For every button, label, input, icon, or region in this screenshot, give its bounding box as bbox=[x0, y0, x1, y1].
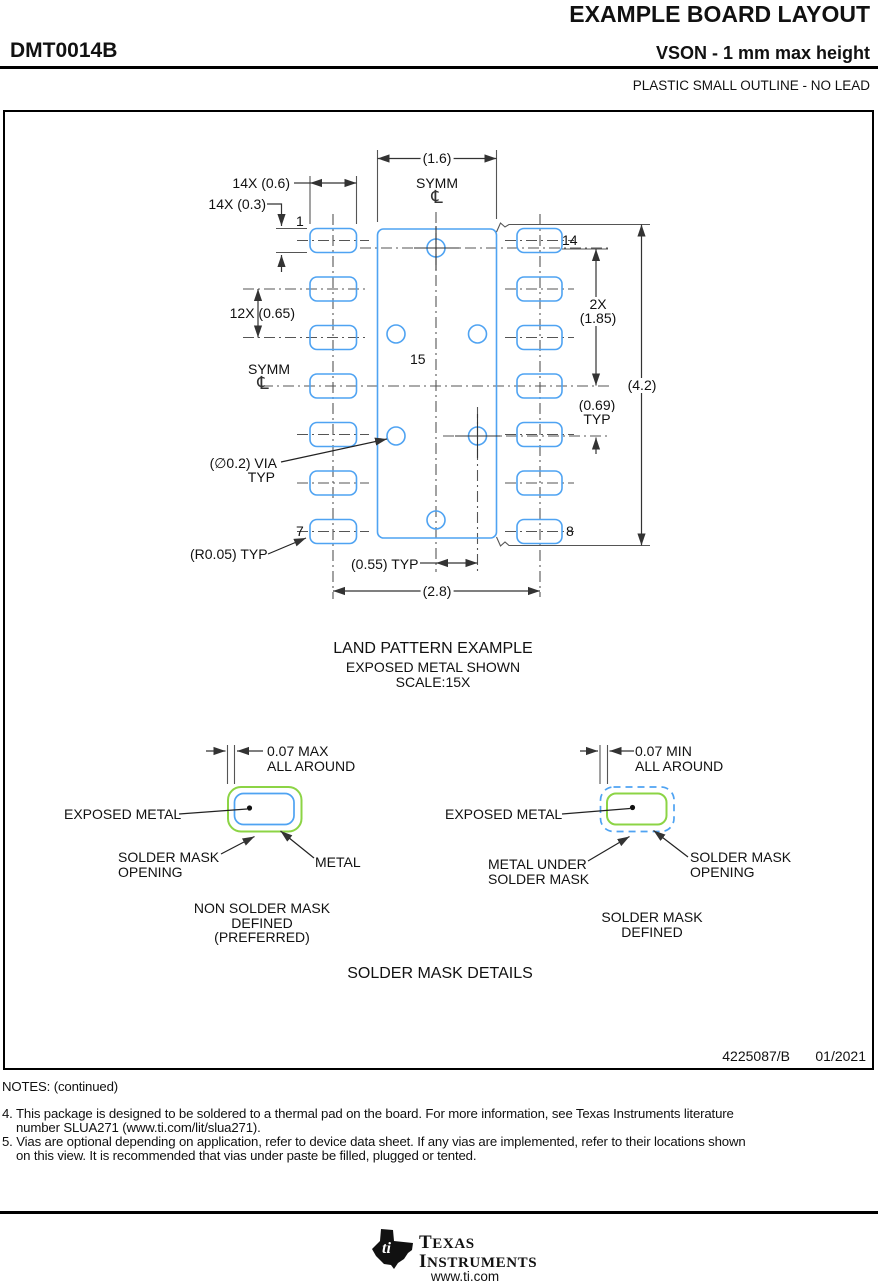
centerline-symbol-top: ℄ bbox=[431, 189, 443, 208]
smd-metal-under-label-2: SOLDER MASK bbox=[488, 872, 589, 887]
ti-monogram: ti bbox=[382, 1240, 391, 1257]
centerline-symbol-left: ℄ bbox=[257, 375, 269, 394]
pin7-label: 7 bbox=[296, 524, 304, 539]
smd-caption-1: SOLDER MASK bbox=[601, 910, 702, 925]
dim-1-6-label: (1.6) bbox=[421, 151, 454, 166]
land-pattern-caption: LAND PATTERN EXAMPLE bbox=[333, 641, 532, 658]
dim-r005-label: (R0.05) TYP bbox=[190, 547, 268, 562]
extension-lines bbox=[276, 150, 650, 546]
exposed-metal-dot bbox=[247, 805, 252, 810]
via-row3-left bbox=[387, 427, 405, 445]
pin8-label: 8 bbox=[566, 524, 574, 539]
doc-number: 4225087/B bbox=[722, 1049, 790, 1064]
doc-date: 01/2021 bbox=[815, 1049, 866, 1064]
note-5-line1: 5. Vias are optional depending on applic… bbox=[2, 1134, 746, 1149]
ti-wordmark-texas: TEXAS bbox=[419, 1233, 537, 1252]
nsmd-opening-label-2: OPENING bbox=[118, 865, 183, 880]
dim-2-8-label: (2.8) bbox=[421, 584, 454, 599]
dim-4-2-label: (4.2) bbox=[626, 378, 659, 393]
via-typ-label: TYP bbox=[248, 470, 275, 485]
pin14-label: 14 bbox=[562, 233, 578, 248]
note-4-line1: 4. This package is designed to be solder… bbox=[2, 1106, 734, 1121]
nsmd-opening-label-1: SOLDER MASK bbox=[118, 850, 219, 865]
dim-14x-06-label: 14X (0.6) bbox=[232, 176, 290, 191]
via-row2-left bbox=[387, 325, 405, 343]
nsmd-metal-label: METAL bbox=[315, 855, 361, 870]
footer-rule bbox=[0, 1211, 878, 1214]
dim-12x-065-label: 12X (0.65) bbox=[230, 306, 295, 321]
datasheet-page: EXAMPLE BOARD LAYOUT DMT0014B VSON - 1 m… bbox=[0, 0, 878, 1288]
dim-0-69-typ-label: TYP bbox=[581, 412, 612, 427]
smd-caption-2: DEFINED bbox=[621, 925, 682, 940]
scale-caption: SCALE:15X bbox=[396, 675, 471, 690]
note-5-line2: on this view. It is recommended that via… bbox=[16, 1148, 476, 1163]
smd-all-around-label: ALL AROUND bbox=[635, 759, 723, 774]
ti-wordmark: TEXAS INSTRUMENTS bbox=[419, 1233, 537, 1271]
smd-opening-label-2: OPENING bbox=[690, 865, 755, 880]
nsmd-caption-3: (PREFERRED) bbox=[214, 930, 310, 945]
notes-heading: NOTES: (continued) bbox=[2, 1079, 118, 1094]
nsmd-all-around-label: ALL AROUND bbox=[267, 759, 355, 774]
smd-metal-under-label-1: METAL UNDER bbox=[488, 857, 587, 872]
smd-dim-label: 0.07 MIN bbox=[635, 744, 692, 759]
dim-14x-03-label: 14X (0.3) bbox=[208, 197, 266, 212]
vias bbox=[387, 239, 487, 529]
dim-0-55-label: (0.55) TYP bbox=[351, 557, 418, 572]
pin15-label: 15 bbox=[410, 352, 426, 367]
pin1-label: 1 bbox=[296, 214, 304, 229]
solder-mask-details-title: SOLDER MASK DETAILS bbox=[347, 966, 533, 983]
exposed-metal-dot-right bbox=[630, 805, 635, 810]
exposed-metal-shown-caption: EXPOSED METAL SHOWN bbox=[346, 660, 520, 675]
note-4-line2: number SLUA271 (www.ti.com/lit/slua271). bbox=[16, 1120, 261, 1135]
dim-1-85-label: (1.85) bbox=[578, 311, 619, 326]
nsmd-exposed-metal-label: EXPOSED METAL bbox=[64, 807, 181, 822]
via-crosshairs bbox=[414, 226, 500, 458]
ti-logo-icon: ti bbox=[372, 1229, 413, 1269]
thermal-pad-pin15 bbox=[378, 229, 497, 538]
leader-lines bbox=[268, 439, 387, 554]
nsmd-dim-label: 0.07 MAX bbox=[267, 744, 328, 759]
smd-exposed-metal-label: EXPOSED METAL bbox=[445, 807, 562, 822]
smd-opening-label-1: SOLDER MASK bbox=[690, 850, 791, 865]
via-row2-right bbox=[469, 325, 487, 343]
metal-under-mask-shape bbox=[607, 794, 667, 825]
nsmd-caption-1: NON SOLDER MASK bbox=[194, 901, 330, 916]
website-link[interactable]: www.ti.com bbox=[431, 1270, 499, 1284]
